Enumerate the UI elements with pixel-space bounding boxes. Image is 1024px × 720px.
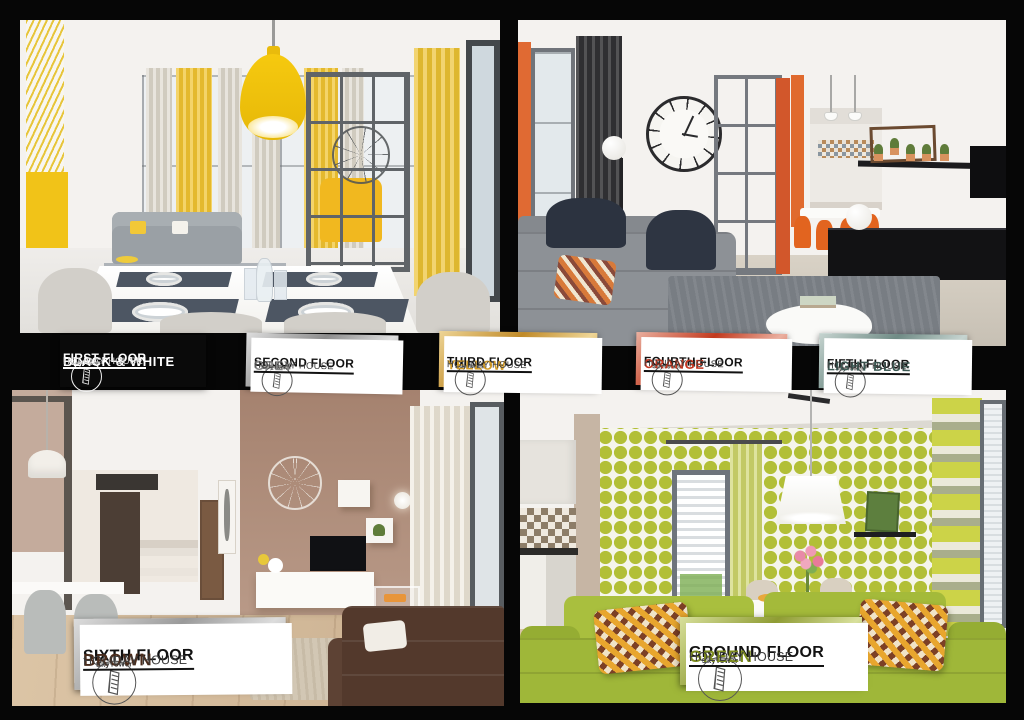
- side-table: [116, 256, 138, 263]
- floor-label-fifth: SkyTower FIFTH FLOOR LIGHT BLUE HOLIDAY …: [819, 333, 968, 390]
- kitchen-counter: [140, 540, 198, 548]
- patterned-pillow: [553, 254, 617, 306]
- holiday-house-text: HOLIDAY HOUSE: [827, 360, 907, 372]
- curtain-rod: [666, 440, 782, 444]
- holiday-house-text: HOLIDAY HOUSE: [83, 652, 187, 667]
- navy-tub-chair: [646, 210, 716, 270]
- cactus-pot: [940, 144, 949, 155]
- orange-door-frame: [776, 78, 790, 274]
- pendant-cord: [830, 75, 832, 113]
- floor-label-fourth: SkyTower FOURTH FLOOR ORANGE HOLIDAY HOU…: [636, 332, 788, 387]
- tv: [310, 536, 366, 571]
- dining-chair: [416, 272, 490, 333]
- checkered-backsplash: [520, 508, 576, 548]
- wall-sconce: [394, 492, 411, 509]
- yellow-flowers: [258, 554, 269, 565]
- window-right: [466, 40, 500, 302]
- partition-frame: [64, 396, 72, 610]
- upper-cabinets: [520, 440, 576, 504]
- kitchen-hood: [96, 474, 158, 490]
- dark-doorway: [100, 492, 140, 594]
- pendant-cord: [810, 390, 812, 480]
- collage-canvas: SkyTower FIRST FLOOR BLACK & WHITE HOLID…: [0, 0, 1024, 720]
- white-pendant-lamp: [28, 450, 66, 478]
- floor-lamp-globe: [602, 136, 626, 160]
- window-right: [470, 402, 504, 620]
- yellow-pendant-lamp: [240, 54, 306, 140]
- kitchen-counter: [520, 548, 578, 555]
- cactus-pot: [874, 144, 883, 155]
- floor-label-second: SkyTower SECOND FLOOR GREY HOLIDAY HOUSE: [245, 333, 398, 390]
- dining-chair: [284, 312, 386, 333]
- holiday-house-text: HOLIDAY HOUSE: [254, 359, 334, 372]
- window-right: [980, 400, 1006, 628]
- brown-sofa: [342, 606, 504, 706]
- white-pendant-lamp: [776, 476, 846, 524]
- holiday-house-text: HOLIDAY HOUSE: [447, 359, 527, 371]
- dining-table: [12, 582, 124, 594]
- white-sideboard: [256, 572, 374, 608]
- wall-poster: [218, 480, 236, 554]
- yellow-curtain-right: [414, 48, 460, 296]
- picture-ledge: [854, 532, 916, 537]
- pendant-cord: [46, 390, 48, 452]
- floor-label-ground: SkyTower GROUND FLOOR GREEN HOLIDAY HOUS…: [680, 617, 862, 685]
- white-pillow: [172, 221, 188, 234]
- roman-wall-clock: [646, 96, 722, 172]
- glass-partition: [306, 72, 410, 272]
- dining-chair: [38, 268, 112, 333]
- plate: [306, 272, 342, 286]
- holiday-house-text: HOLIDAY HOUSE: [689, 650, 793, 664]
- floor-label-sixth: SkyTower SIXTH FLOOR BROWN HOLIDAY HOUSE: [74, 617, 287, 690]
- black-tv-cabinet: [828, 228, 1006, 280]
- cactus-pot: [922, 144, 931, 155]
- cactus-pot: [890, 138, 899, 149]
- plate: [146, 272, 182, 286]
- sphere-lamp: [846, 204, 872, 230]
- drinking-glass: [244, 268, 257, 300]
- patterned-pillow: [855, 598, 948, 671]
- cube-shelf: [338, 480, 370, 507]
- white-pillow: [363, 620, 408, 652]
- drinking-glass: [274, 270, 287, 300]
- dining-chair: [24, 590, 66, 654]
- green-artwork: [865, 491, 900, 533]
- wall-tv: [970, 146, 1006, 198]
- holiday-house-text: HOLIDAY HOUSE: [63, 356, 143, 367]
- rose-bouquet: [790, 544, 826, 574]
- floor-label-third: SkyTower THIRD FLOOR YELLOW HOLIDAY HOUS…: [439, 331, 598, 389]
- yellow-pillow: [130, 221, 146, 234]
- navy-tub-chair: [546, 198, 626, 248]
- pendant-cord: [854, 75, 856, 113]
- wire-wall-clock: [268, 456, 322, 510]
- kitchen-backsplash: [818, 140, 874, 158]
- books-stack: [800, 296, 836, 308]
- orange-chair: [794, 216, 811, 248]
- floor-label-first: SkyTower FIRST FLOOR BLACK & WHITE HOLID…: [60, 335, 206, 387]
- photo-orange-apartment: [518, 20, 1006, 346]
- holiday-house-text: HOLIDAY HOUSE: [644, 358, 724, 370]
- partition-frame: [12, 396, 72, 402]
- patterned-pillow: [593, 601, 693, 674]
- cube-shelf-plant: [366, 518, 393, 543]
- cactus-pot: [906, 144, 915, 155]
- orange-curtain: [791, 75, 804, 227]
- glass-carafe: [256, 258, 273, 302]
- sphere-lamp: [268, 558, 283, 573]
- dining-chair: [160, 312, 262, 333]
- track-spotlight: [788, 393, 830, 404]
- photo-yellow-apartment: [20, 20, 500, 333]
